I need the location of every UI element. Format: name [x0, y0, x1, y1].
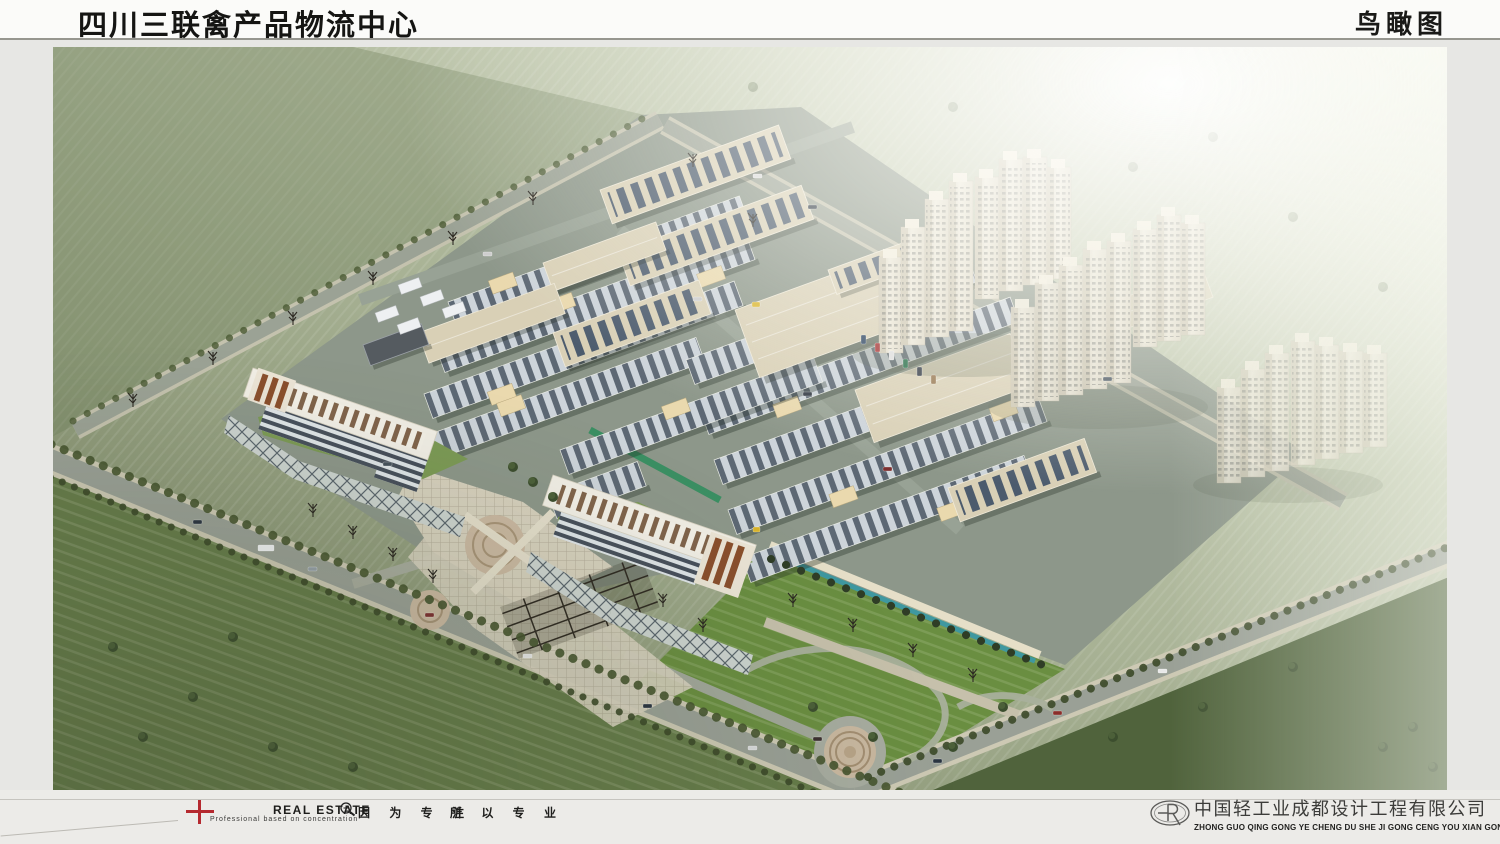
magnifier-icon [339, 801, 357, 824]
footer-bar: Professional based on concentration REAL… [0, 790, 1500, 844]
company-pinyin: ZHONG GUO QING GONG YE CHENG DU SHE JI G… [1194, 823, 1484, 832]
page-title: 四川三联禽产品物流中心 [78, 2, 419, 44]
view-type-label: 鸟瞰图 [1355, 4, 1448, 41]
company-name: 中国轻工业成都设计工程有限公司 [1194, 795, 1484, 821]
footer-slogan-right: 所 以 专 业 [450, 804, 564, 821]
footer-tagline: Professional based on concentration [210, 816, 358, 823]
render-scene [53, 47, 1447, 790]
bird-eye-render [53, 47, 1447, 790]
company-logo [1148, 797, 1196, 840]
atmosphere [53, 47, 1447, 790]
presentation-board: 四川三联禽产品物流中心 鸟瞰图 [0, 0, 1500, 844]
header-bar: 四川三联禽产品物流中心 鸟瞰图 [0, 0, 1500, 40]
company-block: 中国轻工业成都设计工程有限公司 ZHONG GUO QING GONG YE C… [1194, 795, 1484, 832]
footer-diagonal-line [1, 820, 178, 837]
